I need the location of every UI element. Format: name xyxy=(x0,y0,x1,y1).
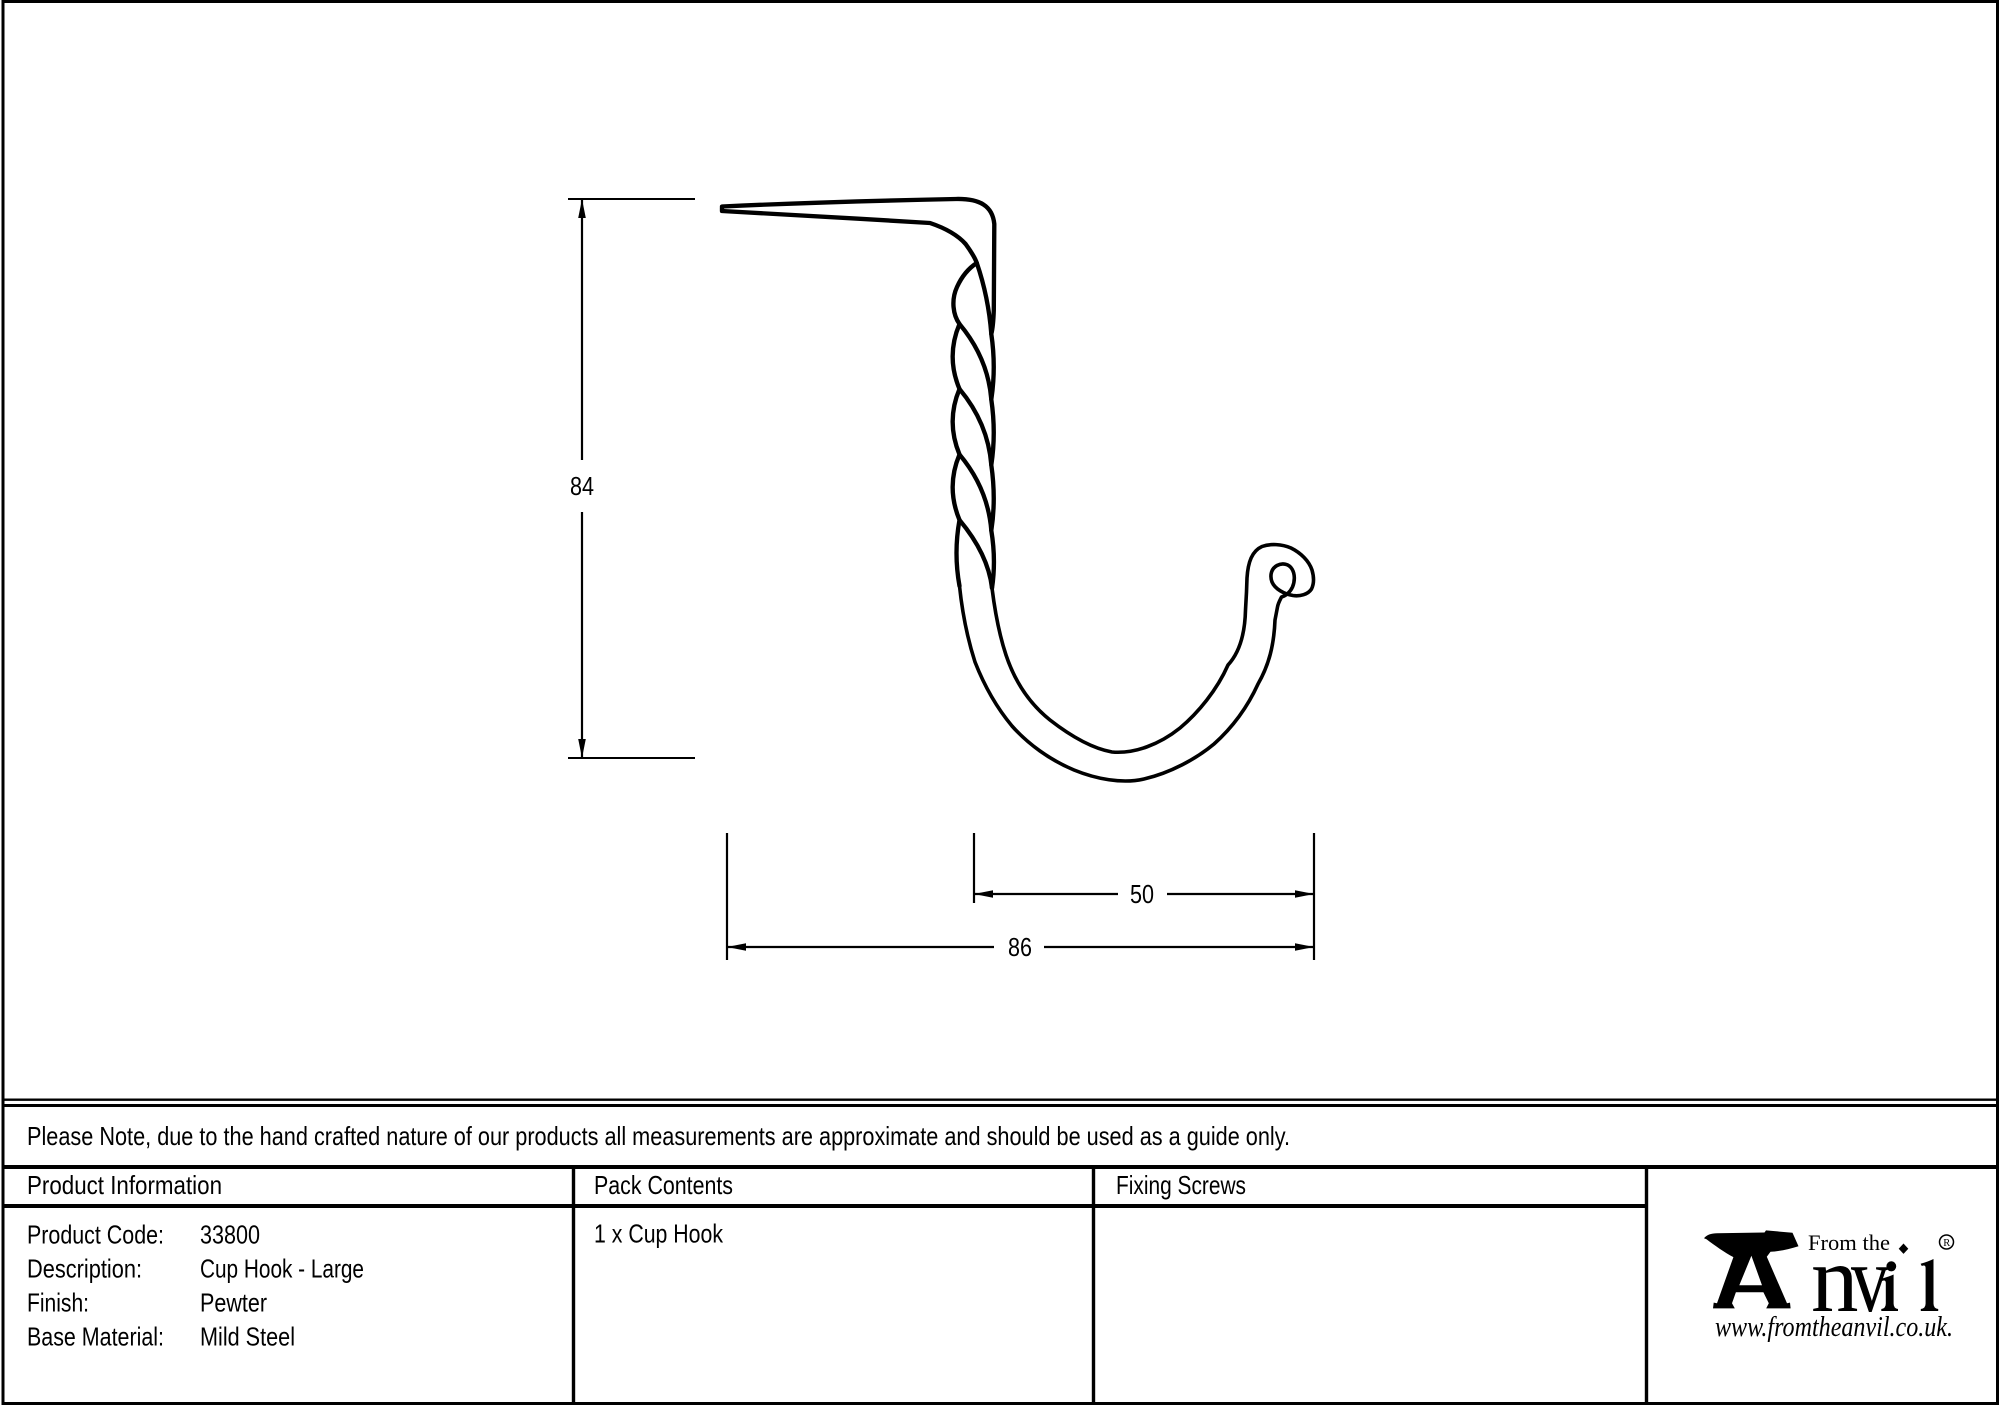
svg-text:84: 84 xyxy=(570,471,594,501)
svg-text:Pewter: Pewter xyxy=(200,1288,267,1318)
svg-text:Description:: Description: xyxy=(27,1254,142,1284)
svg-text:50: 50 xyxy=(1130,879,1154,909)
svg-text:Product Information: Product Information xyxy=(27,1170,222,1200)
svg-text:Base Material:: Base Material: xyxy=(27,1322,164,1352)
svg-text:Cup Hook - Large: Cup Hook - Large xyxy=(200,1254,364,1284)
svg-text:86: 86 xyxy=(1008,932,1032,962)
svg-text:Pack Contents: Pack Contents xyxy=(594,1170,733,1200)
svg-text:Product Code:: Product Code: xyxy=(27,1220,164,1250)
svg-text:Finish:: Finish: xyxy=(27,1288,89,1318)
svg-text:R: R xyxy=(1943,1238,1950,1249)
svg-text:1 x Cup Hook: 1 x Cup Hook xyxy=(594,1219,724,1249)
svg-text:Mild Steel: Mild Steel xyxy=(200,1322,295,1352)
svg-text:Please Note, due to the hand c: Please Note, due to the hand crafted nat… xyxy=(27,1121,1290,1151)
svg-text:33800: 33800 xyxy=(200,1220,260,1250)
svg-text:Fixing Screws: Fixing Screws xyxy=(1116,1170,1246,1200)
svg-text:www.fromtheanvil.co.uk.: www.fromtheanvil.co.uk. xyxy=(1715,1312,1953,1343)
